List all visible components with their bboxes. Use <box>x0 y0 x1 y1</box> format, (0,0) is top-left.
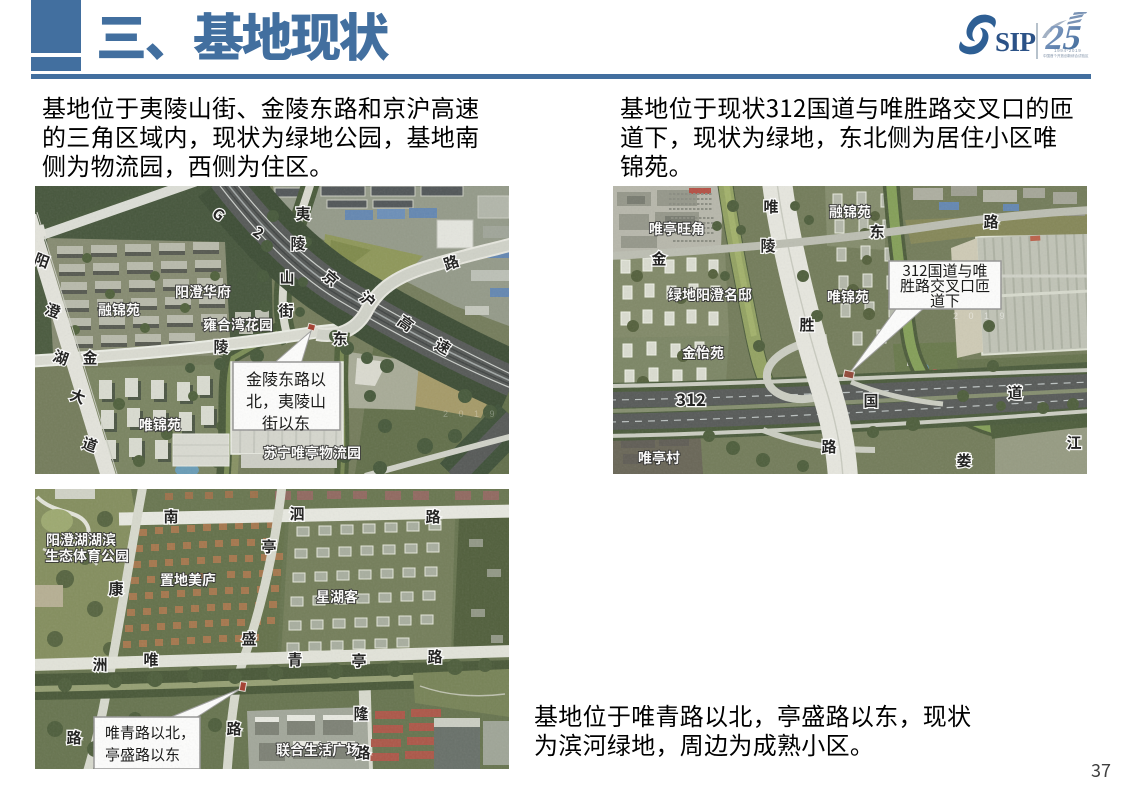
svg-text:中国首个开放创新综合试验区: 中国首个开放创新综合试验区 <box>1043 53 1089 59</box>
svg-text:1994-2019: 1994-2019 <box>1054 48 1081 53</box>
svg-text:2 0 1 9: 2 0 1 9 <box>953 311 1009 321</box>
svg-text:SIP: SIP <box>995 27 1036 57</box>
